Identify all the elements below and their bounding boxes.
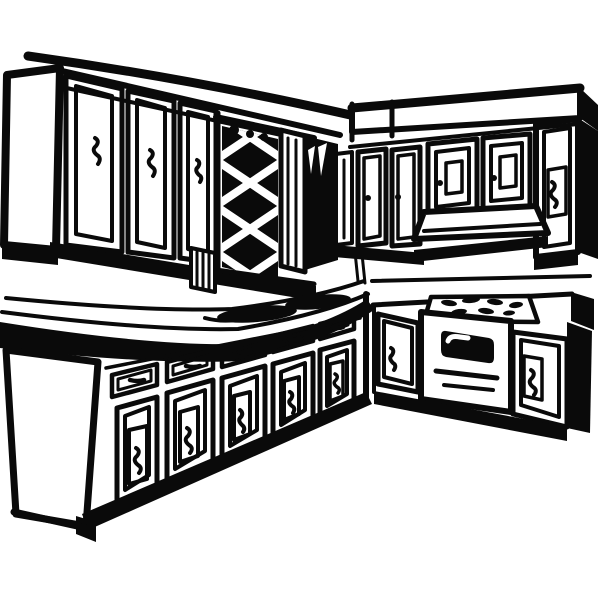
kitchen-clipart-canvas: Retro kitchen clipart bbox=[0, 0, 600, 600]
drawer-handle bbox=[130, 380, 144, 381]
drawer-handle bbox=[289, 339, 301, 340]
cabinet-side-cap bbox=[567, 322, 592, 433]
door-knob bbox=[365, 195, 371, 201]
range-hood bbox=[414, 206, 548, 239]
drawer-handle bbox=[186, 366, 200, 367]
door-knob bbox=[437, 180, 443, 186]
window-pillar bbox=[281, 130, 305, 272]
cabinet-side-panel bbox=[6, 350, 98, 526]
drawer-handle bbox=[333, 327, 343, 328]
oven bbox=[421, 312, 511, 412]
door-knob bbox=[491, 175, 497, 181]
kitchen-line-art: Retro kitchen clipart bbox=[0, 0, 600, 600]
cabinet-side-panel bbox=[4, 68, 60, 250]
drawer-handle bbox=[239, 352, 251, 353]
kitchen-clipart-figure: Retro kitchen clipart bbox=[0, 0, 600, 600]
door-knob bbox=[395, 194, 401, 200]
